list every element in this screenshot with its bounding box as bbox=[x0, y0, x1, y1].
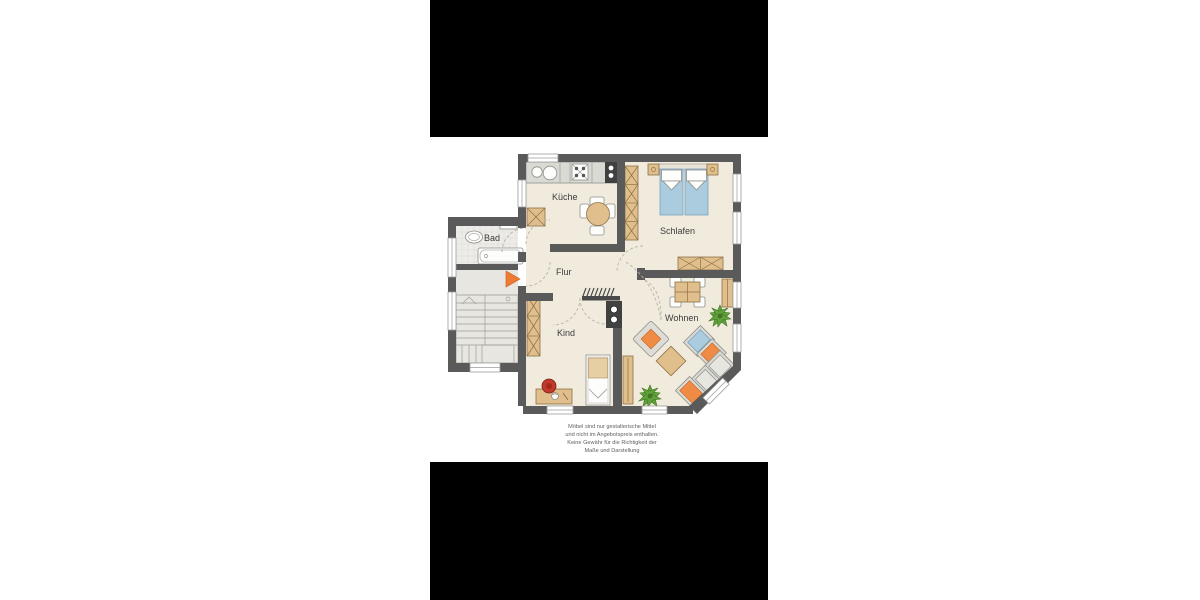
wardrobe-icon bbox=[527, 296, 540, 356]
window-icon bbox=[733, 174, 741, 202]
single-bed-icon bbox=[586, 355, 610, 405]
window-icon bbox=[733, 212, 741, 244]
disclaimer: Möbel sind nur gestalterische Mittel und… bbox=[565, 424, 659, 454]
sideboard-icon bbox=[722, 279, 733, 307]
floor-plan: Küche Schlafen Bad Flur Kind Wohnen Möbe… bbox=[440, 140, 760, 460]
floor-plan-svg: Küche Schlafen Bad Flur Kind Wohnen Möbe… bbox=[440, 140, 760, 460]
window-icon bbox=[733, 282, 741, 308]
room-label-wohnen: Wohnen bbox=[665, 313, 698, 323]
window-icon bbox=[448, 238, 456, 277]
window-icon bbox=[733, 324, 741, 352]
oven-icon bbox=[605, 162, 617, 183]
room-label-bad: Bad bbox=[484, 233, 500, 243]
shaft-icon bbox=[527, 208, 545, 226]
letterbox-top-bar bbox=[430, 0, 768, 137]
cooktop-icon bbox=[572, 164, 588, 180]
disclaimer-line-1: Möbel sind nur gestalterische Mittel bbox=[568, 424, 656, 430]
room-label-kueche: Küche bbox=[552, 192, 578, 202]
cabinet-icon bbox=[623, 356, 633, 404]
disclaimer-line-4: Maße und Darstellung bbox=[584, 448, 639, 454]
bathtub-icon bbox=[478, 248, 523, 264]
window-icon bbox=[518, 180, 526, 207]
disclaimer-line-3: Keine Gewähr für die Richtigkeit der bbox=[567, 440, 657, 446]
chair-icon bbox=[590, 226, 604, 235]
room-label-schlafen: Schlafen bbox=[660, 226, 695, 236]
room-label-flur: Flur bbox=[556, 267, 572, 277]
desk-lamp-icon bbox=[542, 379, 556, 393]
window-icon bbox=[642, 406, 667, 414]
chimney-icon bbox=[606, 301, 622, 328]
letterbox-bottom-bar bbox=[430, 462, 768, 600]
wardrobe-icon bbox=[678, 257, 723, 270]
wardrobe-icon bbox=[625, 166, 638, 240]
window-icon bbox=[448, 292, 456, 330]
window-icon bbox=[470, 363, 500, 372]
window-icon bbox=[528, 154, 558, 162]
room-label-kind: Kind bbox=[557, 328, 575, 338]
window-icon bbox=[547, 406, 573, 414]
washbasin-icon bbox=[466, 231, 483, 243]
disclaimer-line-2: und nicht im Angebotspreis enthalten. bbox=[565, 432, 659, 438]
